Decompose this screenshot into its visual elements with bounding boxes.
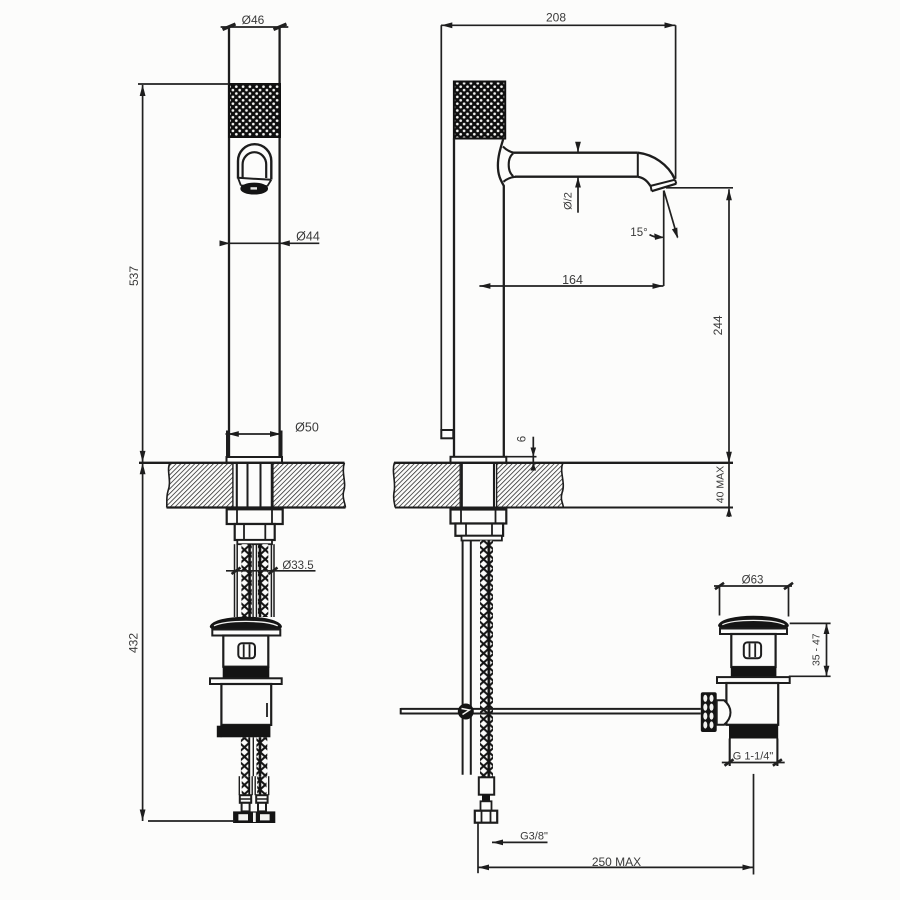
svg-text:Ø46: Ø46 — [242, 13, 265, 27]
svg-text:Ø50: Ø50 — [295, 421, 319, 435]
svg-text:Ø44: Ø44 — [296, 230, 320, 244]
svg-text:40 MAX: 40 MAX — [715, 466, 727, 503]
svg-text:Ø33.5: Ø33.5 — [282, 560, 313, 572]
svg-text:250 MAX: 250 MAX — [592, 855, 641, 869]
svg-text:208: 208 — [546, 11, 566, 25]
svg-text:6: 6 — [517, 436, 529, 442]
svg-text:537: 537 — [127, 266, 141, 286]
svg-text:15°: 15° — [630, 227, 647, 239]
svg-text:244: 244 — [711, 315, 725, 335]
svg-text:35 - 47: 35 - 47 — [811, 633, 823, 666]
svg-text:G3/8": G3/8" — [520, 831, 548, 843]
svg-text:Ø/2: Ø/2 — [563, 192, 575, 210]
svg-text:Ø63: Ø63 — [742, 575, 764, 587]
svg-text:G 1-1/4": G 1-1/4" — [733, 751, 774, 763]
svg-text:164: 164 — [562, 273, 583, 287]
svg-text:432: 432 — [127, 633, 141, 653]
